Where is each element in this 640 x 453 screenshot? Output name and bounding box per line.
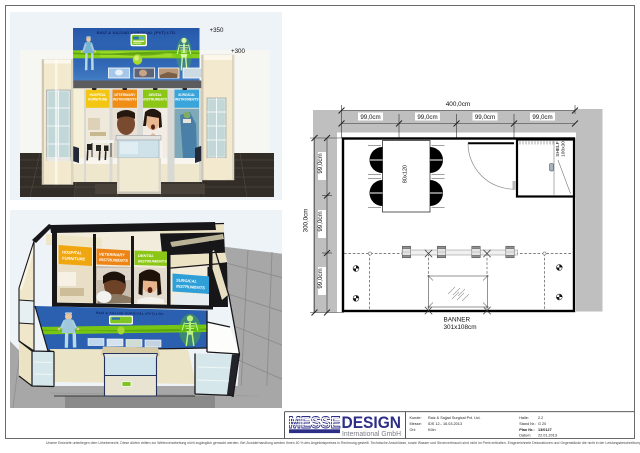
svg-text:IDS 12.- 16.03.2013: IDS 12.- 16.03.2013 <box>428 422 462 426</box>
svg-text:400,0cm: 400,0cm <box>446 101 471 108</box>
svg-text:INSTRUMENTS: INSTRUMENTS <box>143 98 168 102</box>
svg-text:300,0cm: 300,0cm <box>303 209 310 233</box>
svg-text:Halle:: Halle: <box>519 416 529 420</box>
svg-text:13/0127: 13/0127 <box>538 428 552 432</box>
svg-text:100x30: 100x30 <box>561 141 567 157</box>
svg-text:99,0cm: 99,0cm <box>317 211 324 231</box>
svg-text:Ort:: Ort: <box>410 428 416 432</box>
svg-text:22.01.2013: 22.01.2013 <box>538 434 557 438</box>
svg-text:SURGICAL: SURGICAL <box>178 93 195 97</box>
svg-text:DENTAL: DENTAL <box>149 93 162 97</box>
svg-text:INSTRUMENTS: INSTRUMENTS <box>175 98 200 102</box>
svg-text:FURNITURE: FURNITURE <box>62 256 86 262</box>
svg-text:FURNITURE: FURNITURE <box>88 98 108 102</box>
svg-text:INSTRUMENTS: INSTRUMENTS <box>113 98 138 102</box>
svg-text:Messe:: Messe: <box>410 422 422 426</box>
svg-text:INSTRUMENTS: INSTRUMENTS <box>99 257 128 263</box>
svg-text:Kunde:: Kunde: <box>410 416 422 420</box>
svg-text:+350: +350 <box>210 27 224 34</box>
svg-text:International GmbH: International GmbH <box>342 429 401 438</box>
svg-text:Stand Nr.:: Stand Nr.: <box>519 422 536 426</box>
svg-text:+300: +300 <box>231 48 245 55</box>
svg-text:80x120: 80x120 <box>403 165 409 183</box>
svg-text:G 20: G 20 <box>538 422 546 426</box>
svg-text:INSTRUMENTS: INSTRUMENTS <box>138 259 167 264</box>
svg-text:DENTAL: DENTAL <box>138 253 154 258</box>
svg-text:VETERINARY: VETERINARY <box>114 93 136 97</box>
svg-text:SHELF: SHELF <box>555 141 561 157</box>
svg-text:Köln: Köln <box>428 428 436 432</box>
svg-text:301x108cm: 301x108cm <box>444 324 477 331</box>
svg-text:99,0cm: 99,0cm <box>532 114 552 121</box>
svg-text:HOSPITAL: HOSPITAL <box>62 250 83 256</box>
svg-text:99,0cm: 99,0cm <box>475 114 495 121</box>
svg-text:Plan Nr.:: Plan Nr.: <box>519 428 534 432</box>
svg-text:99,0cm: 99,0cm <box>360 114 380 121</box>
svg-text:HOSPITAL: HOSPITAL <box>89 93 105 97</box>
svg-text:99,0cm: 99,0cm <box>417 114 437 121</box>
svg-text:Raiz & Sajjad Surgical Pvt. Lt: Raiz & Sajjad Surgical Pvt. Ltd. <box>428 416 481 420</box>
svg-text:Datum:: Datum: <box>519 434 531 438</box>
svg-text:99,0cm: 99,0cm <box>317 268 324 288</box>
svg-text:2.2: 2.2 <box>538 416 543 420</box>
svg-text:99,0cm: 99,0cm <box>317 153 324 173</box>
svg-text:BANNER: BANNER <box>444 317 471 324</box>
